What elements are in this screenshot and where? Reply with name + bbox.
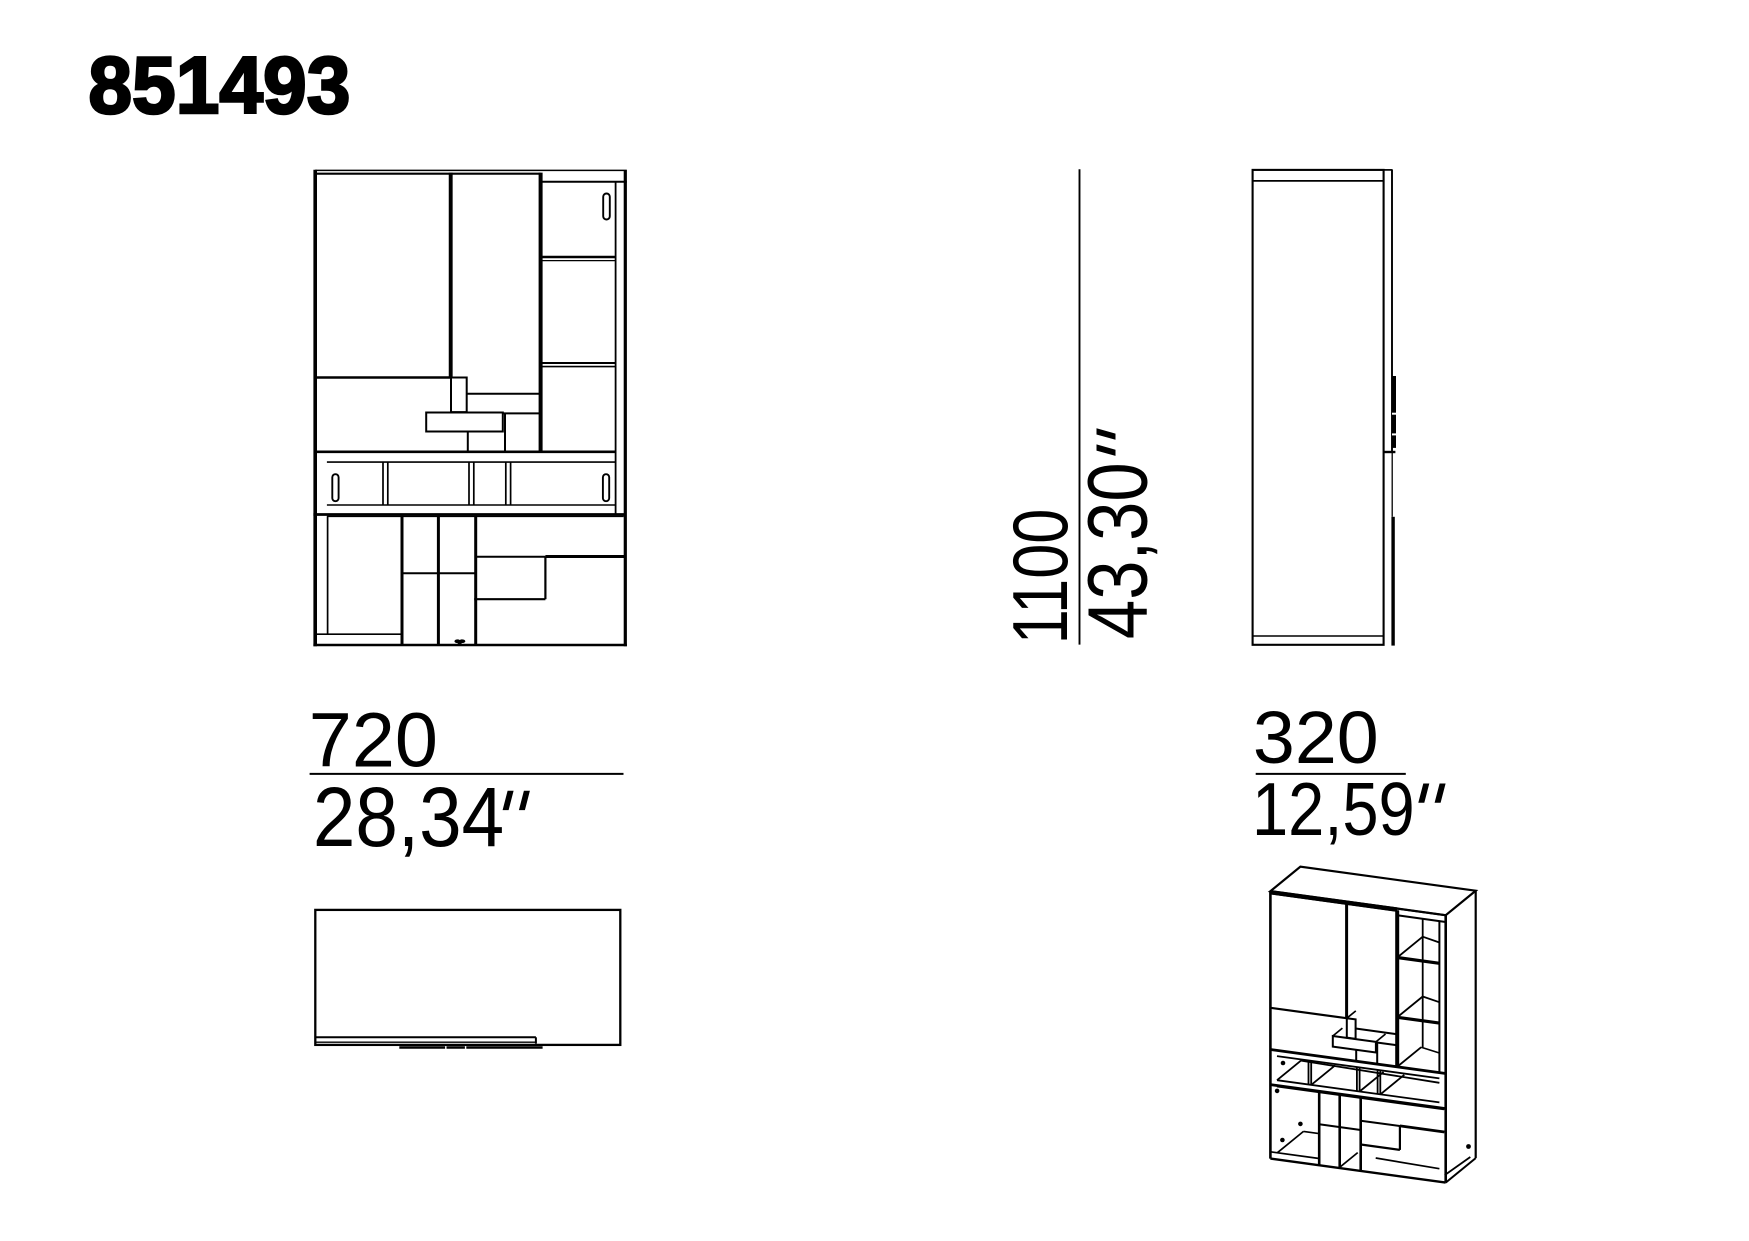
svg-text:851493: 851493 (88, 41, 350, 131)
svg-text:12,59: 12,59 (1252, 767, 1415, 851)
svg-text:28,34: 28,34 (313, 770, 504, 864)
svg-text:43,30: 43,30 (1071, 462, 1165, 639)
